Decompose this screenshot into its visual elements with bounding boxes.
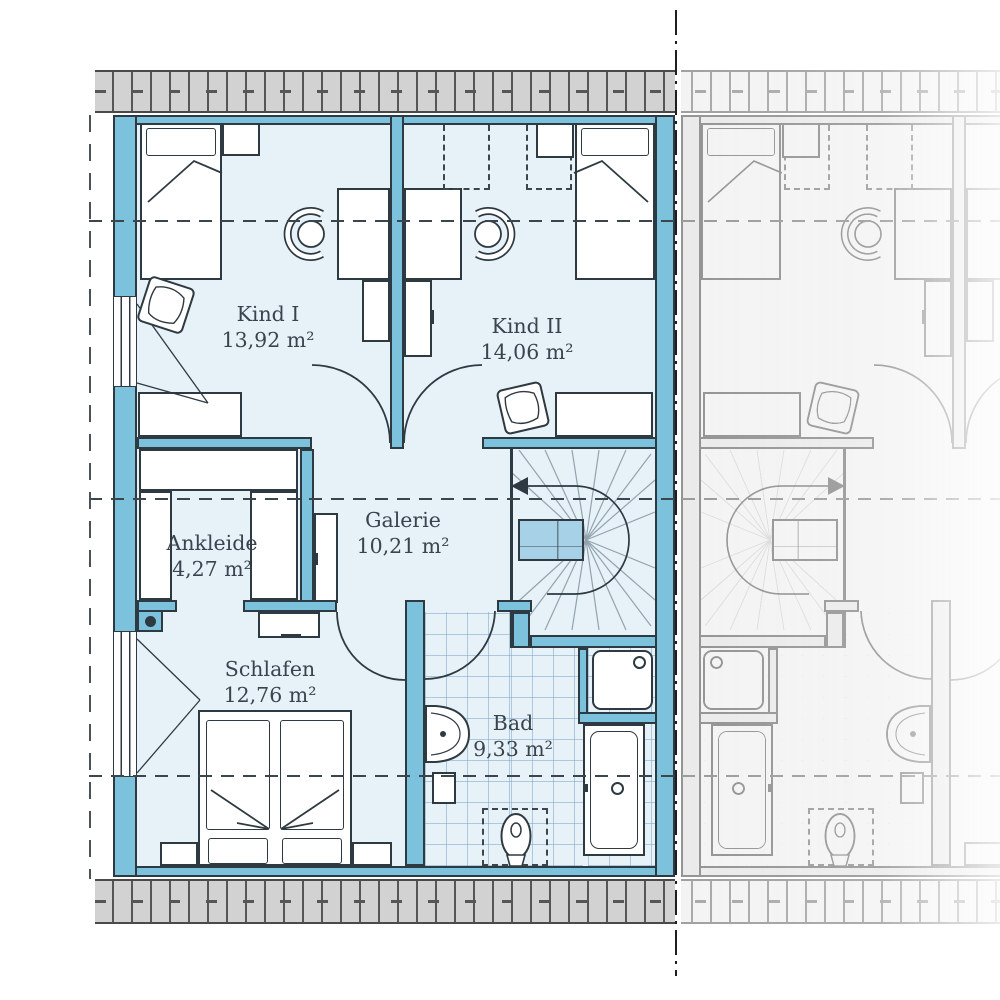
roof-height-line-top xyxy=(89,220,677,222)
room-area: 14,06 m² xyxy=(481,339,574,365)
ghost-wall-shower-side xyxy=(768,648,778,724)
ghost-stair-open-edge xyxy=(844,449,847,648)
ghost-wall-stair-newel xyxy=(826,612,844,648)
ghost-bed-kind2 xyxy=(701,118,781,280)
room-label-kind2: Kind II 14,06 m² xyxy=(481,313,574,365)
ghost-stair-direction-arrow-icon xyxy=(828,477,845,495)
plan-linework xyxy=(95,60,677,930)
roof-height-line-bottom xyxy=(89,775,677,777)
ghost-floor-area xyxy=(681,115,1000,877)
ghost-drawer-unit-kind2 xyxy=(924,280,952,357)
stair-direction-arrow-icon xyxy=(511,477,528,495)
room-area: 13,92 m² xyxy=(222,327,315,353)
ghost-wall-kind2-galerie xyxy=(699,437,874,449)
roof-height-line-middle xyxy=(89,498,677,500)
ghost-stair-landing xyxy=(772,519,838,561)
washbasin xyxy=(426,706,469,762)
ghost-desk-kind1 xyxy=(966,188,1000,280)
ghost-cushion-kind2 xyxy=(807,382,860,435)
ghost-roof-height-line-top xyxy=(679,220,1000,222)
room-area: 9,33 m² xyxy=(473,736,553,762)
ghost-shower xyxy=(703,650,764,710)
ghost-stair-walk-line xyxy=(727,477,845,594)
room-label-galerie: Galerie 10,21 m² xyxy=(357,507,450,559)
ghost-wall-kind-divider xyxy=(952,115,966,449)
ghost-bathtub xyxy=(711,724,773,856)
room-area: 4,27 m² xyxy=(167,556,258,582)
main-unit-plan: Kind I 13,92 m² Kind II 14,06 m² Ankleid… xyxy=(95,60,677,930)
ghost-toilet xyxy=(826,814,855,866)
ghost-bath-tile-floor xyxy=(845,612,931,866)
room-area: 12,76 m² xyxy=(224,682,317,708)
ghost-roof-height-line-middle xyxy=(679,498,1000,500)
ghost-drawer-handle xyxy=(922,310,926,324)
ghost-desk-kind2 xyxy=(894,188,952,280)
room-area: 10,21 m² xyxy=(357,533,450,559)
room-name: Ankleide xyxy=(167,530,258,556)
beanbag-kind1 xyxy=(137,276,195,334)
ghost-nightstand-right xyxy=(964,842,1000,866)
chair-kind2 xyxy=(475,211,511,257)
room-name: Galerie xyxy=(357,507,450,533)
room-label-kind1: Kind I 13,92 m² xyxy=(222,301,315,353)
ghost-plan-linework xyxy=(679,60,1000,930)
neighboring-unit-ghost xyxy=(679,60,1000,930)
ghost-wall-exterior-top xyxy=(681,115,1000,125)
stair-walk-line xyxy=(511,477,629,594)
cushion-kind2 xyxy=(497,382,550,435)
ghost-roof-height-line-bottom xyxy=(679,775,1000,777)
ghost-sideboard-kind2 xyxy=(703,392,801,437)
ghost-wall-party xyxy=(681,115,701,877)
ghost-roof-overhang-hatch-bottom xyxy=(681,879,1000,924)
room-name: Schlafen xyxy=(224,656,317,682)
toilet xyxy=(502,814,531,866)
ghost-wall-schlafen-bad xyxy=(931,600,951,866)
ghost-washbasin xyxy=(887,706,930,762)
room-label-bad: Bad 9,33 m² xyxy=(473,710,553,762)
ghost-roof-closet-dashed-1 xyxy=(866,125,913,190)
floor-plan-canvas: Kind I 13,92 m² Kind II 14,06 m² Ankleid… xyxy=(0,0,1000,1000)
chair-kind1 xyxy=(288,211,324,257)
ghost-door-arcs xyxy=(861,365,1000,680)
ghost-blanket-folds xyxy=(708,161,1000,829)
blanket-folds xyxy=(148,161,648,829)
ghost-wall-exterior-bottom xyxy=(681,866,1000,877)
ghost-wall-tub-head xyxy=(699,712,778,724)
ghost-bath-tile-floor xyxy=(701,648,768,866)
ghost-toilet-clearance-dashed xyxy=(808,808,874,866)
ghost-wall-under-stair xyxy=(699,635,826,648)
ghost-chair-kind2 xyxy=(845,211,881,257)
ghost-roof-overhang-hatch-top xyxy=(681,70,1000,113)
roof-eave-dashed-line xyxy=(89,115,91,879)
room-name: Kind I xyxy=(222,301,315,327)
ghost-shelf-kind2 xyxy=(782,118,820,158)
ghost-roof-closet-dashed-2 xyxy=(784,125,830,190)
room-label-ankleide: Ankleide 4,27 m² xyxy=(167,530,258,582)
ghost-wall-bad-door-stub xyxy=(824,600,859,612)
party-wall-axis-line xyxy=(675,10,677,976)
room-name: Kind II xyxy=(481,313,574,339)
ghost-stair-steps xyxy=(679,60,1000,930)
ghost-drawer-unit-kind1 xyxy=(966,280,994,342)
room-name: Bad xyxy=(473,710,553,736)
ghost-pillow-kind2 xyxy=(707,128,775,156)
ghost-bath-cabinet xyxy=(900,772,924,804)
room-label-schlafen: Schlafen 12,76 m² xyxy=(224,656,317,708)
ghost-bath-tile-floor xyxy=(773,648,845,866)
